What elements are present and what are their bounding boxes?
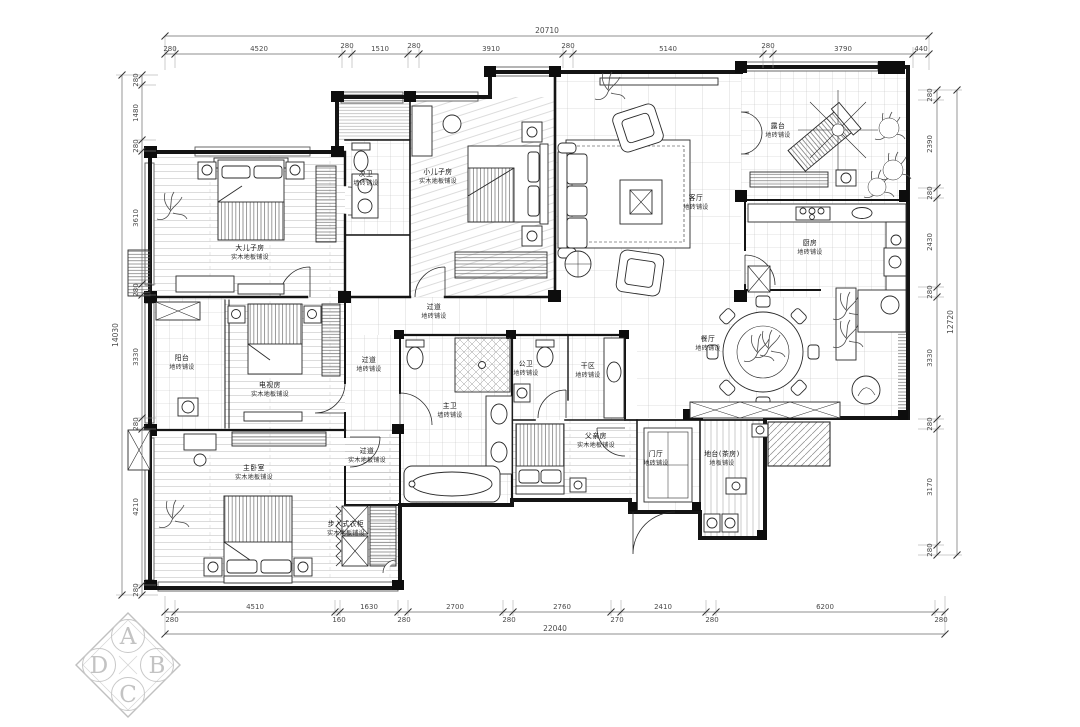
dim-right-seg: 280 [926,186,934,199]
dim-left-seg: 3330 [132,348,140,366]
dim-left-seg: 3610 [132,209,140,227]
room-label-terrace: 露台 [771,121,786,130]
room-label-tea-room: 地台(茶房) [704,449,740,458]
room-label-master-bedroom: 主卧室 [243,463,265,472]
room-label-dining: 餐厅 [701,334,716,343]
walk-in-closet [336,506,396,573]
room-finish-balcony: 地砖铺设 [169,363,194,371]
dim-bottom-total: 22040 [543,624,567,633]
room-finish-public-bath: 地砖铺设 [513,369,538,377]
floor-plan-sheet: 20710 280 4520 280 1510 280 3910 280 514… [0,0,1080,727]
room-finish-father-room: 实木地板铺设 [577,441,615,449]
dim-bottom-seg: 160 [332,616,345,624]
room-finish-master-bath: 墙砖铺设 [437,411,462,419]
dim-bottom-seg: 280 [705,616,718,624]
dim-right-seg: 2430 [926,233,934,251]
dim-top-seg: 1510 [371,45,389,53]
logo-letter-d: D [90,653,108,679]
room-label-dry-area: 干区 [581,362,596,370]
room-label-walk-in-closet: 步入式衣柜 [328,519,364,528]
dim-bottom-seg: 4510 [246,603,264,611]
floor-plan-drawing: 20710 280 4520 280 1510 280 3910 280 514… [0,0,1080,727]
room-label-eldest-son: 大儿子房 [235,243,264,252]
room-label-public-bath: 公卫 [519,360,534,368]
room-finish-tea-room: 地板铺设 [709,459,734,467]
dim-left-seg: 280 [132,73,140,86]
room-label-corridor-2: 过道 [362,355,377,364]
dim-top-seg: 3910 [482,45,500,53]
room-label-entry-hall: 门厅 [649,449,664,458]
dim-left-seg: 1480 [132,104,140,122]
room-finish-corridor-1: 地砖铺设 [421,312,446,320]
room-label-father-room: 父亲房 [585,431,607,440]
dim-bottom-seg: 2760 [553,603,571,611]
equipment-platform [768,422,830,466]
room-label-balcony: 阳台 [175,353,190,362]
room-finish-secondary-bath: 墙砖铺设 [353,179,378,187]
room-label-master-bath: 主卫 [443,401,458,410]
room-label-tv-room: 电视房 [259,380,281,389]
dim-top-seg: 4520 [250,45,268,53]
room-finish-kitchen: 地砖铺设 [797,248,822,256]
dim-bottom-seg: 280 [502,616,515,624]
room-label-corridor-1: 过道 [427,302,442,311]
room-finish-corridor-3: 实木地板铺设 [348,456,386,464]
dim-top-seg: 280 [163,45,176,53]
dim-right-seg: 280 [926,543,934,556]
dim-left-seg: 280 [132,583,140,596]
dim-bottom-seg: 2700 [446,603,464,611]
room-finish-corridor-2: 地砖铺设 [356,365,381,373]
dim-top-seg: 440 [914,45,927,53]
dim-right-total: 12720 [946,310,955,334]
dim-top-seg: 280 [407,42,420,50]
room-finish-younger-son: 实木地板铺设 [419,177,457,185]
dim-left-seg: 280 [132,417,140,430]
dim-left-total: 14030 [111,323,120,347]
room-label-living: 客厅 [689,193,704,202]
dim-bottom-seg: 270 [610,616,623,624]
dim-left-seg: 280 [132,139,140,152]
dim-right-seg: 280 [926,417,934,430]
dim-left-seg: 4210 [132,498,140,516]
dim-top-seg: 3790 [834,45,852,53]
logo-letter-b: B [149,653,166,679]
room-label-kitchen: 厨房 [803,238,818,247]
dim-top-seg: 280 [761,42,774,50]
dim-top-seg: 280 [340,42,353,50]
designer-logo: A B C D [76,613,180,717]
room-label-younger-son: 小儿子房 [423,167,452,176]
dim-bottom-seg: 280 [397,616,410,624]
dim-bottom-seg: 280 [934,616,947,624]
room-finish-living: 地砖铺设 [683,203,708,211]
dim-right-seg: 3170 [926,478,934,496]
room-finish-tv-room: 实木地板铺设 [251,390,289,398]
dim-bottom-seg: 2410 [654,603,672,611]
dim-top-seg: 5140 [659,45,677,53]
room-finish-entry-hall: 地砖铺设 [643,459,668,467]
dim-bottom-seg: 280 [165,616,178,624]
dim-bottom-seg: 6200 [816,603,834,611]
dim-right-seg: 280 [926,285,934,298]
dim-right-seg: 3330 [926,349,934,367]
room-finish-dry-area: 地砖铺设 [575,371,600,379]
room-label-secondary-bath: 次卫 [359,169,374,178]
room-finish-eldest-son: 实木地板铺设 [231,253,269,261]
dim-right-seg: 2390 [926,135,934,153]
logo-letter-c: C [119,682,137,708]
dim-top-seg: 280 [561,42,574,50]
dim-left-seg: 280 [132,283,140,296]
dim-top-total: 20710 [535,26,559,35]
logo-letter-a: A [119,624,137,650]
room-finish-walk-in-closet: 实木地板铺设 [327,529,365,537]
room-label-corridor-3: 过道 [360,446,375,455]
room-finish-master-bedroom: 实木地板铺设 [235,473,273,481]
dim-bottom-seg: 1630 [360,603,378,611]
room-finish-terrace: 地砖铺设 [765,131,790,139]
room-finish-dining: 地砖铺设 [695,344,720,352]
dim-right-seg: 280 [926,88,934,101]
